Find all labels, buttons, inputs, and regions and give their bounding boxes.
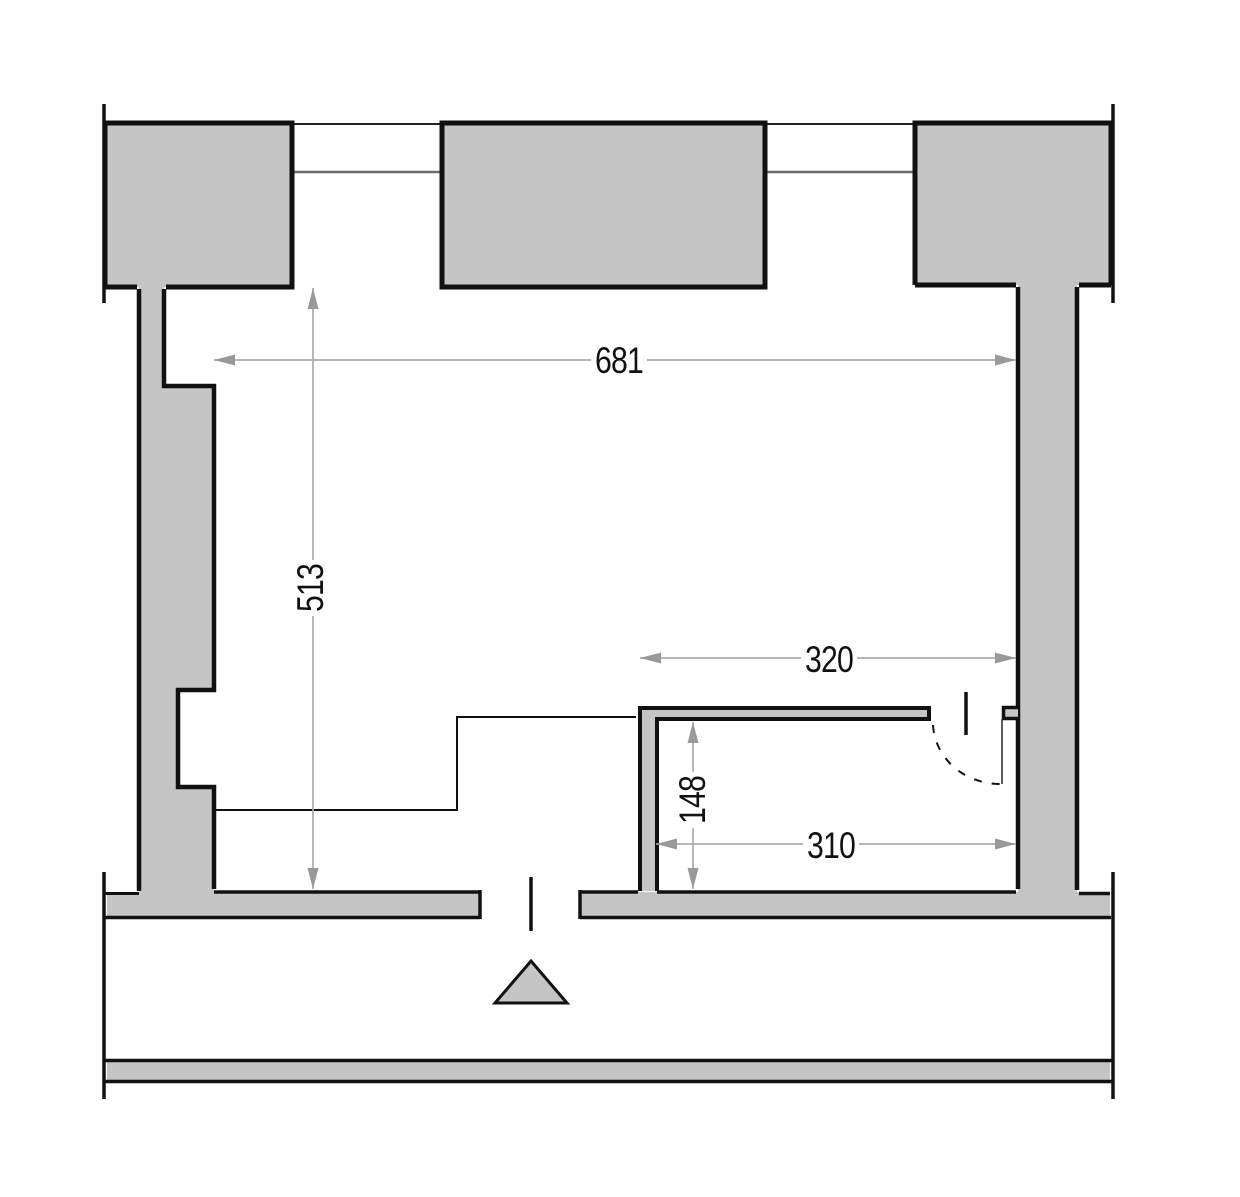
dim-310-label: 310 bbox=[807, 825, 855, 866]
dimension-alcove-width-top: 320 bbox=[640, 639, 1016, 680]
left-wall-block-fill bbox=[105, 123, 292, 287]
dim-310-arrow-left bbox=[656, 839, 677, 850]
dim-148-arrow-up bbox=[688, 722, 699, 743]
dim-681-arrow-right bbox=[995, 355, 1016, 366]
dimension-alcove-width-bottom: 310 bbox=[656, 825, 1016, 866]
dim-310-arrow-right bbox=[995, 839, 1016, 850]
counter-outline bbox=[216, 717, 636, 810]
dim-320-arrow-right bbox=[995, 653, 1016, 664]
dim-681-label: 681 bbox=[595, 340, 643, 381]
entrance-door bbox=[495, 877, 567, 1003]
left-wall-strip-fill bbox=[139, 285, 214, 916]
dim-513-label: 513 bbox=[290, 564, 331, 612]
interior-door bbox=[933, 692, 1002, 784]
dim-681-arrow-left bbox=[214, 355, 235, 366]
dim-320-arrow-left bbox=[640, 653, 661, 664]
dim-513-arrow-up bbox=[308, 288, 319, 309]
dim-320-label: 320 bbox=[805, 639, 853, 680]
floor-plan-page: 681 513 320 bbox=[0, 0, 1240, 1197]
dimension-room-height: 513 bbox=[290, 288, 331, 889]
bottom-wall-right-segment bbox=[580, 890, 1111, 919]
bottom-lower-band-fill bbox=[107, 1060, 1110, 1081]
bottom-wall-left-fill bbox=[107, 892, 480, 917]
bottom-lower-band bbox=[104, 1060, 1113, 1082]
right-wall-strip-fill bbox=[1018, 283, 1077, 916]
right-wall-block-fill bbox=[915, 123, 1111, 285]
right-wall bbox=[915, 123, 1111, 916]
dim-148-arrow-down bbox=[688, 868, 699, 889]
dim-148-label: 148 bbox=[672, 776, 713, 824]
dimension-room-width: 681 bbox=[214, 340, 1016, 381]
entrance-triangle-icon bbox=[495, 961, 567, 1003]
dimensions: 681 513 320 bbox=[214, 288, 1016, 889]
floor-plan-canvas: 681 513 320 bbox=[0, 0, 1240, 1197]
dim-513-arrow-down bbox=[308, 868, 319, 889]
dimension-alcove-height: 148 bbox=[672, 722, 713, 889]
bottom-wall-left-segment bbox=[105, 890, 480, 919]
left-wall bbox=[105, 123, 292, 916]
top-middle-wall-block bbox=[442, 123, 765, 287]
bottom-wall-right-fill bbox=[580, 892, 1110, 917]
